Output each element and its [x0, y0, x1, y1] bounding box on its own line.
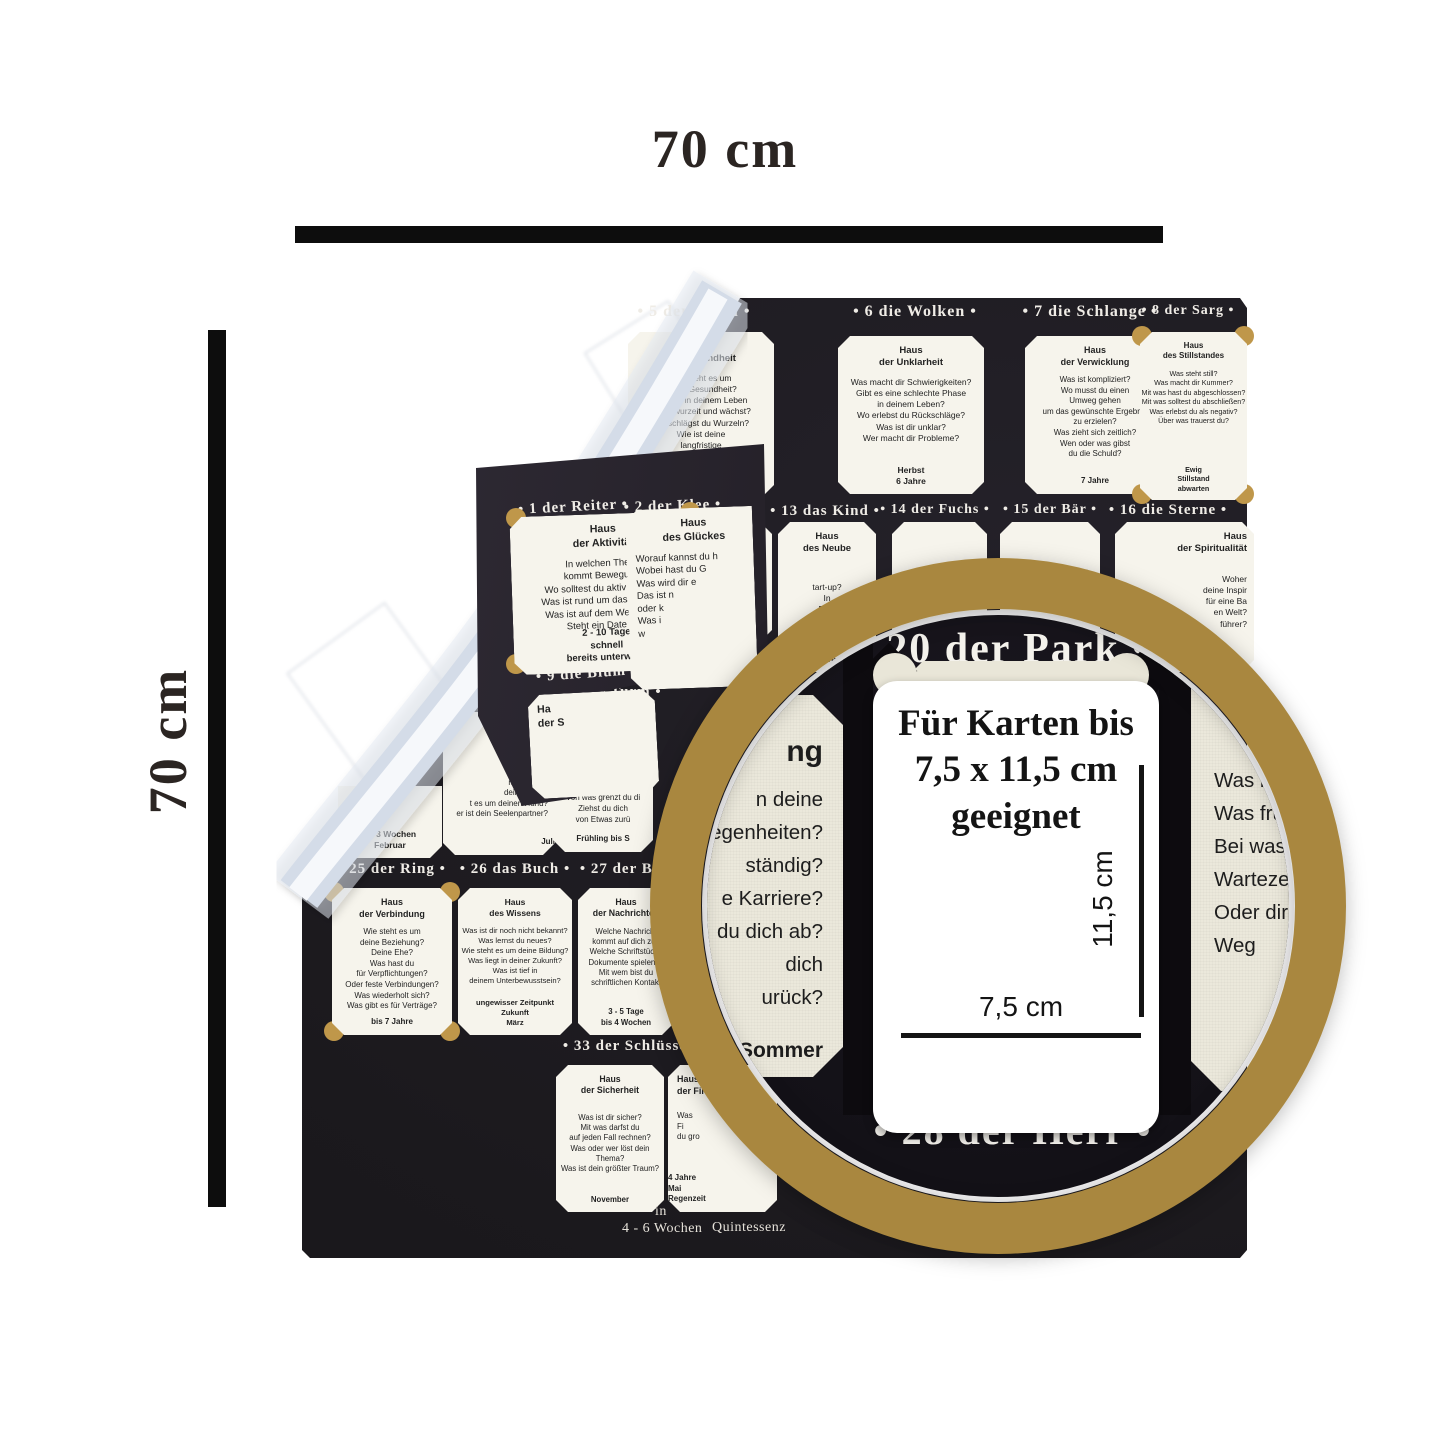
house-card-26-das-buch: Haus des Wissens Was ist dir noch nicht …: [458, 888, 572, 1035]
house-header-16-die-sterne: • 16 die Sterne •: [1098, 502, 1238, 519]
house-header-26-das-buch: • 26 das Buch •: [455, 861, 575, 878]
left-height-label: 70 cm: [137, 651, 199, 831]
house-header-5-der-baum: • 5 der Baum •: [614, 303, 774, 321]
product-image: 70 cm 70 cm • 5 der Baum • • 6 die Wolke…: [0, 0, 1445, 1445]
magnifier-ring: [650, 558, 1346, 1254]
cloth-note-quintessenz: Quintessenz: [712, 1220, 786, 1236]
house-card-33-der-schluessel: Haus der Sicherheit Was ist dir sicher? …: [556, 1065, 664, 1212]
house-header-15-der-baer: • 15 der Bär •: [995, 502, 1105, 518]
house-card-25-der-ring: Haus der Verbindung Wie steht es um dein…: [332, 888, 452, 1035]
house-card-17-die-stoerche: 2 - 3 Wochen Februar: [338, 786, 442, 858]
cloth-note-in: in: [655, 1204, 667, 1220]
house-header-6-die-wolken: • 6 die Wolken •: [820, 303, 1010, 321]
house-card-2-der-klee: Haus des Glückes Worauf kannst du h Wobe…: [625, 506, 758, 690]
house-card-9-die-blumen: Ha der S: [527, 689, 659, 800]
house-header-13-das-kind: • 13 das Kind •: [770, 503, 880, 520]
house-header-14-der-fuchs: • 14 der Fuchs •: [880, 502, 990, 518]
left-height-bar: [208, 330, 226, 1207]
house-card-6-die-wolken: Haus der Unklarheit Was macht dir Schwie…: [838, 336, 984, 494]
cloth-note-weeks: 4 - 6 Wochen: [622, 1221, 702, 1237]
top-width-bar: [295, 226, 1163, 243]
house-header-8-der-sarg: • 8 der Sarg •: [1128, 303, 1248, 319]
house-header-25-der-ring: • 25 der Ring •: [330, 861, 454, 878]
house-card-8-der-sarg: Haus des Stillstandes Was steht still? W…: [1140, 332, 1247, 500]
top-width-label: 70 cm: [595, 118, 855, 180]
